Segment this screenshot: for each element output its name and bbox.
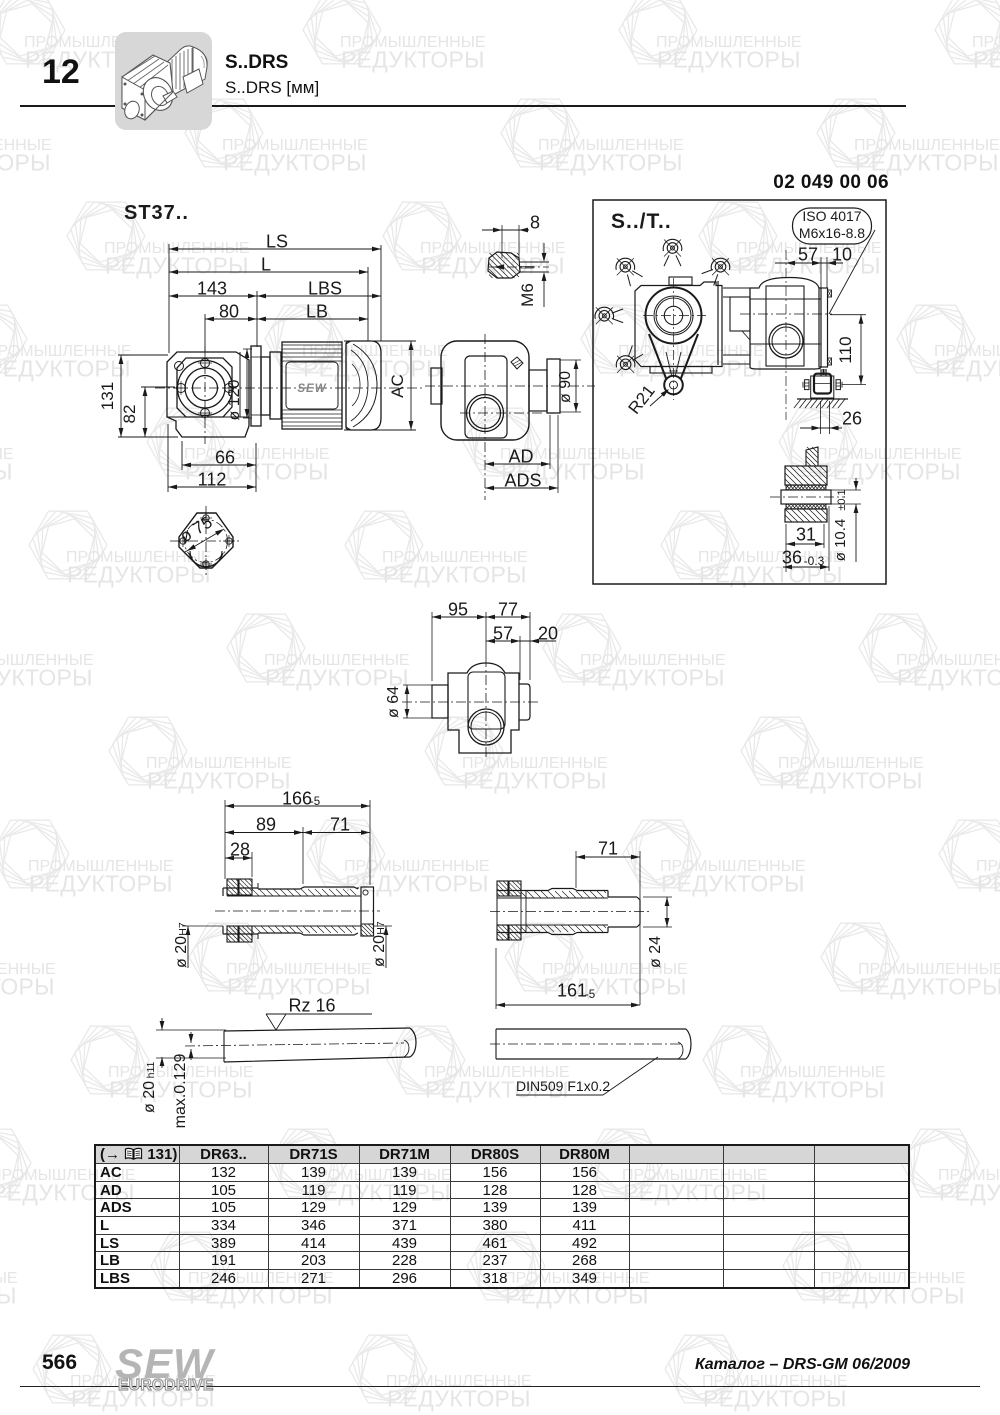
svg-text:ø 120: ø 120 <box>226 379 243 420</box>
svg-text:161: 161 <box>557 981 587 1001</box>
svg-text:ISO 4017: ISO 4017 <box>802 208 861 224</box>
svg-text:112: 112 <box>198 470 227 490</box>
svg-text:-5: -5 <box>310 796 320 808</box>
svg-text:L: L <box>261 255 271 275</box>
svg-text:AC: AC <box>388 374 407 398</box>
svg-text:ø 20: ø 20 <box>173 936 190 968</box>
svg-text:H7: H7 <box>177 922 189 936</box>
svg-text:95: 95 <box>448 600 468 620</box>
svg-text:20: 20 <box>538 624 558 644</box>
svg-text:31: 31 <box>796 525 816 545</box>
svg-text:H7: H7 <box>375 921 387 935</box>
svg-text:ø 90: ø 90 <box>557 371 574 403</box>
svg-text:10: 10 <box>832 245 852 265</box>
svg-text:±0.1: ±0.1 <box>836 489 848 510</box>
svg-text:66: 66 <box>215 448 235 468</box>
svg-text:M6x16-8.8: M6x16-8.8 <box>799 225 865 241</box>
svg-text:AD: AD <box>508 447 533 467</box>
svg-text:Rz 16: Rz 16 <box>288 996 335 1016</box>
svg-text:131: 131 <box>98 382 117 410</box>
svg-text:-5: -5 <box>585 989 595 1001</box>
svg-text:max.0.129: max.0.129 <box>172 1054 189 1129</box>
svg-text:26: 26 <box>842 409 862 429</box>
svg-text:-0.3: -0.3 <box>804 554 825 568</box>
svg-text:ø 24: ø 24 <box>647 936 664 968</box>
svg-text:SEW: SEW <box>297 383 326 395</box>
svg-text:110: 110 <box>836 336 855 363</box>
svg-text:ø 64: ø 64 <box>385 686 402 718</box>
svg-text:28: 28 <box>230 840 250 860</box>
svg-text:LB: LB <box>306 302 328 322</box>
svg-text:71: 71 <box>330 815 350 835</box>
svg-text:ø 10.4: ø 10.4 <box>832 519 849 562</box>
svg-text:80: 80 <box>219 302 239 322</box>
svg-text:h11: h11 <box>145 1061 157 1078</box>
svg-text:S../T..: S../T.. <box>611 210 672 233</box>
svg-text:ST37..: ST37.. <box>124 202 189 224</box>
svg-text:143: 143 <box>197 279 227 299</box>
svg-text:57: 57 <box>493 624 513 644</box>
svg-text:89: 89 <box>256 815 276 835</box>
svg-text:M6: M6 <box>518 283 537 307</box>
svg-text:ø 20: ø 20 <box>141 1081 158 1113</box>
svg-text:77: 77 <box>498 600 518 620</box>
svg-text:36: 36 <box>782 548 802 568</box>
svg-text:8: 8 <box>530 213 540 233</box>
svg-text:DIN509 F1x0.2: DIN509 F1x0.2 <box>516 1078 610 1094</box>
svg-text:57: 57 <box>798 245 818 265</box>
svg-text:82: 82 <box>120 405 139 424</box>
svg-text:LS: LS <box>266 232 288 252</box>
svg-text:LBS: LBS <box>308 279 342 299</box>
svg-text:ADS: ADS <box>504 471 541 491</box>
svg-text:R21: R21 <box>625 381 659 417</box>
svg-text:ø 20: ø 20 <box>371 935 388 967</box>
svg-text:166: 166 <box>282 789 312 809</box>
svg-text:71: 71 <box>598 839 618 859</box>
